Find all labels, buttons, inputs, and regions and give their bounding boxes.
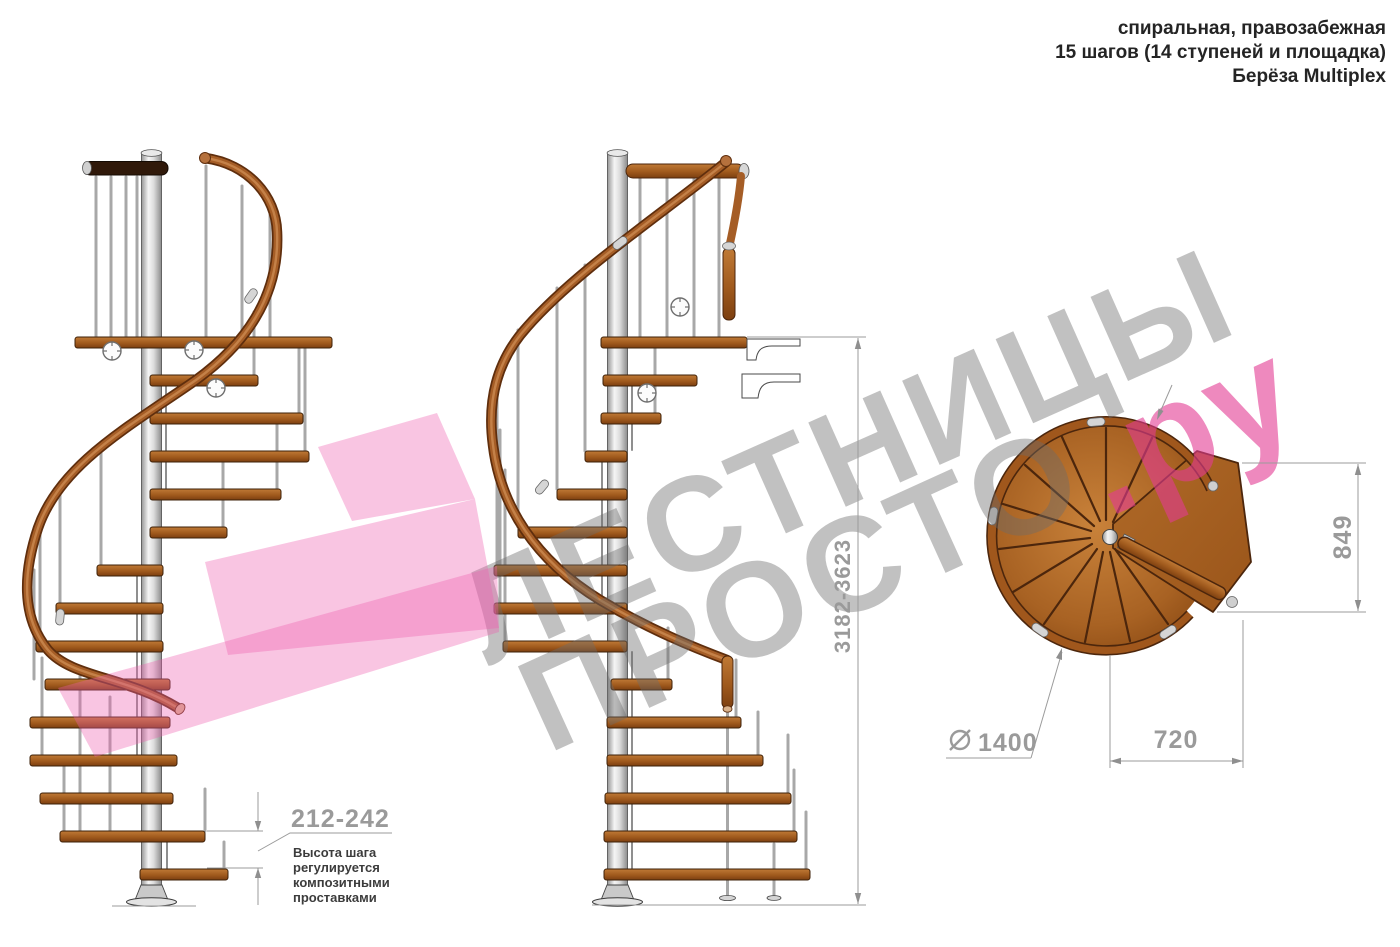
title-line2: 15 шагов (14 ступеней и площадка): [1055, 42, 1386, 63]
handrail-sleeve: [55, 609, 64, 626]
base-flange-middle: [593, 885, 782, 906]
tread: [150, 451, 309, 462]
landing-depth-value: 849: [1329, 515, 1357, 560]
tread: [604, 831, 797, 842]
base-flange-left: [127, 885, 177, 906]
handrail-vertical-upper: [723, 248, 735, 320]
tread: [601, 413, 661, 424]
dim-diameter: 1400: [946, 648, 1062, 758]
handrail-sleeve: [534, 478, 550, 495]
title-line3: Берёза Multiplex: [1232, 66, 1386, 87]
dim-step-height: 212-242 Высота шага регулируется компози…: [207, 792, 392, 905]
landing-bracket: [742, 374, 800, 398]
guard-rail-left: [83, 162, 169, 176]
drawing-canvas: ЛЕСТНИЦЫ ПРОСТО .ру 212-242 Высота шага …: [0, 0, 1400, 947]
landing-bracket: [747, 339, 800, 360]
handrail-end-cap-middle: [723, 706, 732, 712]
tread: [150, 413, 303, 424]
plan-bar-end-cap: [1227, 597, 1238, 608]
diameter-value: 1400: [978, 729, 1038, 757]
tread: [40, 793, 173, 804]
pole-top-cap-left: [141, 150, 162, 157]
tread: [56, 603, 163, 614]
landing-platform-middle: [601, 337, 747, 348]
step-height-note-line1: Высота шага: [293, 845, 377, 860]
tread: [607, 755, 763, 766]
tread: [150, 527, 227, 538]
step-height-note-line2: регулируется: [293, 860, 380, 875]
guard-rail-middle: [626, 164, 749, 179]
tread: [585, 451, 627, 462]
staircase-technical-drawing: ЛЕСТНИЦЫ ПРОСТО .ру 212-242 Высота шага …: [0, 0, 1400, 947]
side-view-left: [27, 150, 332, 907]
handrail-sleeve: [243, 287, 259, 305]
tread: [140, 869, 228, 880]
tread: [605, 793, 791, 804]
title-block: спиральная, правозабежная 15 шагов (14 с…: [1055, 18, 1386, 87]
step-height-note-line4: проставками: [293, 890, 377, 905]
tread-run-value: 720: [1154, 726, 1199, 754]
step-height-value: 212-242: [291, 805, 390, 833]
pole-top-cap-middle: [607, 150, 628, 157]
tread: [150, 489, 281, 500]
guard-rail-cap: [83, 162, 92, 175]
handrail-knob-left: [200, 153, 211, 164]
total-height-value: 3182-3623: [830, 539, 855, 653]
tread: [30, 755, 177, 766]
handrail-knob-middle: [721, 156, 732, 167]
diameter-icon: [950, 730, 970, 750]
handrail-drop-segment: [729, 176, 741, 248]
title-line1: спиральная, правозабежная: [1118, 18, 1386, 39]
tread: [60, 831, 205, 842]
tread: [97, 565, 163, 576]
tread: [604, 869, 810, 880]
step-height-note-line3: композитными: [293, 875, 390, 890]
